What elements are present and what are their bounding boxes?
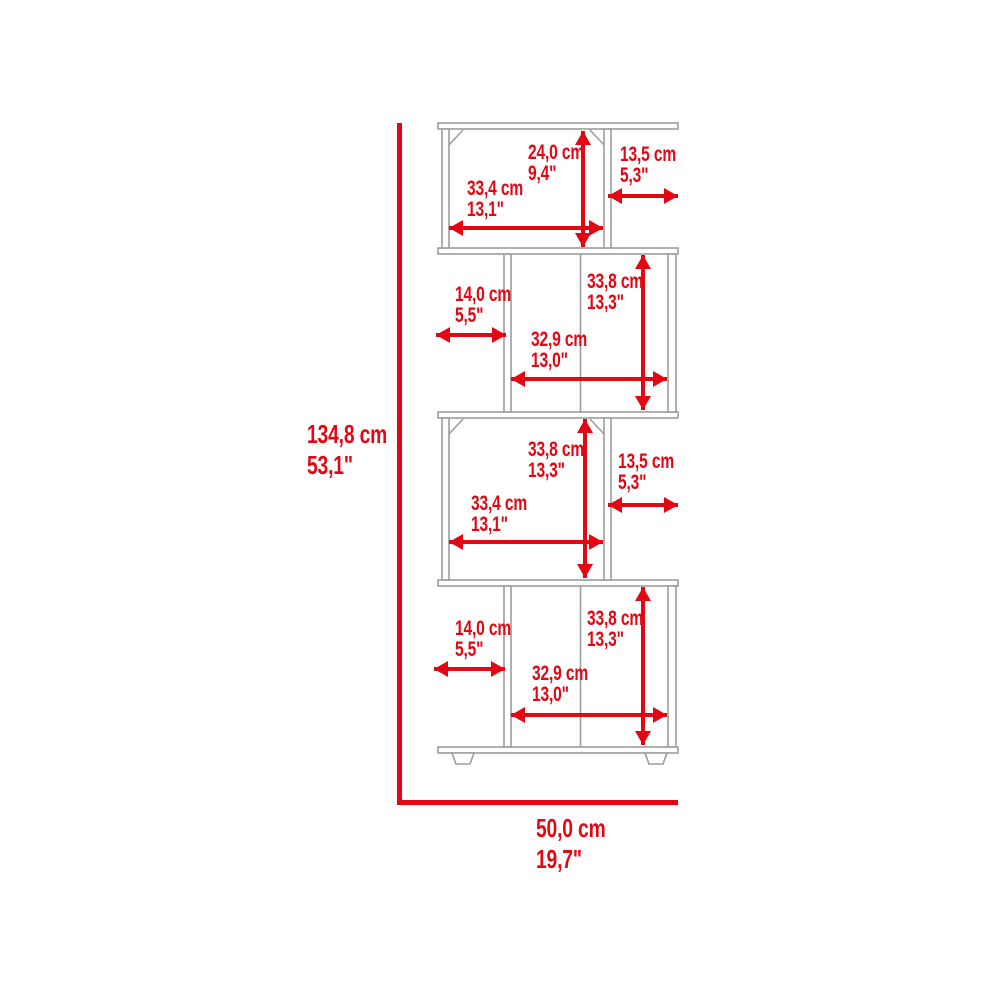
right-foot bbox=[645, 753, 667, 764]
tier1-right-corner-bracket bbox=[590, 130, 604, 145]
dim-cm: 24,0 cm bbox=[528, 142, 584, 163]
tier4-left-panel bbox=[504, 586, 511, 747]
shelf-board-3 bbox=[438, 412, 678, 418]
dim-inches: 13,3" bbox=[587, 292, 643, 313]
tier3-side-depth-arrow bbox=[608, 503, 678, 507]
dim-inches: 9,4" bbox=[528, 163, 584, 184]
tier2-right-panel bbox=[668, 254, 676, 412]
tier4-opening-height-label: 33,8 cm 13,3" bbox=[587, 608, 643, 650]
shelf-board-2 bbox=[438, 248, 678, 254]
dim-cm: 33,8 cm bbox=[528, 439, 584, 460]
overall-width-inches: 19,7" bbox=[536, 844, 606, 875]
tier4-opening-width-label: 32,9 cm 13,0" bbox=[532, 663, 588, 705]
tier1-side-depth-label: 13,5 cm 5,3" bbox=[620, 144, 676, 186]
overall-width-extent-line bbox=[397, 800, 678, 805]
dim-cm: 33,4 cm bbox=[467, 178, 523, 199]
dim-inches: 13,1" bbox=[471, 514, 527, 535]
left-foot bbox=[452, 753, 474, 764]
shelf-board-4 bbox=[438, 580, 678, 586]
dim-inches: 5,5" bbox=[455, 639, 511, 660]
tier3-opening-width-label: 33,4 cm 13,1" bbox=[471, 493, 527, 535]
shelf-board-top bbox=[438, 123, 678, 129]
tier2-opening-height-label: 33,8 cm 13,3" bbox=[587, 271, 643, 313]
overall-width-cm: 50,0 cm bbox=[536, 813, 606, 844]
furniture-dimension-diagram: 134,8 cm 53,1" 50,0 cm 19,7" 24,0 cm 9,4… bbox=[0, 0, 1000, 1000]
dim-cm: 14,0 cm bbox=[455, 284, 511, 305]
tier3-opening-width-arrow bbox=[449, 540, 603, 544]
tier4-side-depth-label: 14,0 cm 5,5" bbox=[455, 618, 511, 660]
tier3-opening-height-label: 33,8 cm 13,3" bbox=[528, 439, 584, 481]
dim-inches: 5,5" bbox=[455, 305, 511, 326]
tier1-opening-height-label: 24,0 cm 9,4" bbox=[528, 142, 584, 184]
dim-cm: 33,4 cm bbox=[471, 493, 527, 514]
tier1-opening-width-arrow bbox=[449, 226, 603, 230]
overall-width-label: 50,0 cm 19,7" bbox=[536, 813, 606, 875]
tier1-opening-width-label: 33,4 cm 13,1" bbox=[467, 178, 523, 220]
dim-cm: 13,5 cm bbox=[620, 144, 676, 165]
tier4-side-depth-arrow bbox=[434, 667, 505, 671]
tier2-opening-width-label: 32,9 cm 13,0" bbox=[531, 329, 587, 371]
tier2-side-depth-label: 14,0 cm 5,5" bbox=[455, 284, 511, 326]
dim-cm: 32,9 cm bbox=[531, 329, 587, 350]
tier2-side-depth-arrow bbox=[436, 333, 506, 337]
dim-cm: 33,8 cm bbox=[587, 608, 643, 629]
tier1-left-corner-bracket bbox=[449, 130, 463, 145]
tier1-side-depth-arrow bbox=[608, 194, 678, 198]
tier4-opening-width-arrow bbox=[511, 713, 667, 717]
tier3-side-depth-label: 13,5 cm 5,3" bbox=[618, 451, 674, 493]
tier3-left-corner-bracket bbox=[449, 419, 463, 434]
tier2-opening-width-arrow bbox=[511, 377, 667, 381]
dim-inches: 5,3" bbox=[620, 165, 676, 186]
dim-cm: 32,9 cm bbox=[532, 663, 588, 684]
dim-cm: 14,0 cm bbox=[455, 618, 511, 639]
overall-height-inches: 53,1" bbox=[307, 450, 387, 481]
base-board bbox=[438, 747, 678, 753]
dim-inches: 13,1" bbox=[467, 199, 523, 220]
tier2-opening-height-arrow bbox=[641, 255, 645, 410]
overall-height-label: 134,8 cm 53,1" bbox=[307, 419, 387, 481]
dim-inches: 13,0" bbox=[531, 350, 587, 371]
tier3-left-panel bbox=[442, 418, 449, 580]
dim-inches: 5,3" bbox=[618, 472, 674, 493]
tier4-right-panel bbox=[668, 586, 676, 747]
dim-inches: 13,0" bbox=[532, 684, 588, 705]
dim-cm: 13,5 cm bbox=[618, 451, 674, 472]
overall-height-extent-line bbox=[397, 123, 402, 805]
tier4-opening-height-arrow bbox=[641, 587, 645, 745]
dim-cm: 33,8 cm bbox=[587, 271, 643, 292]
dim-inches: 13,3" bbox=[587, 629, 643, 650]
tier1-left-panel bbox=[442, 129, 449, 248]
dim-inches: 13,3" bbox=[528, 460, 584, 481]
overall-height-cm: 134,8 cm bbox=[307, 419, 387, 450]
tier3-opening-height-arrow bbox=[583, 419, 587, 578]
